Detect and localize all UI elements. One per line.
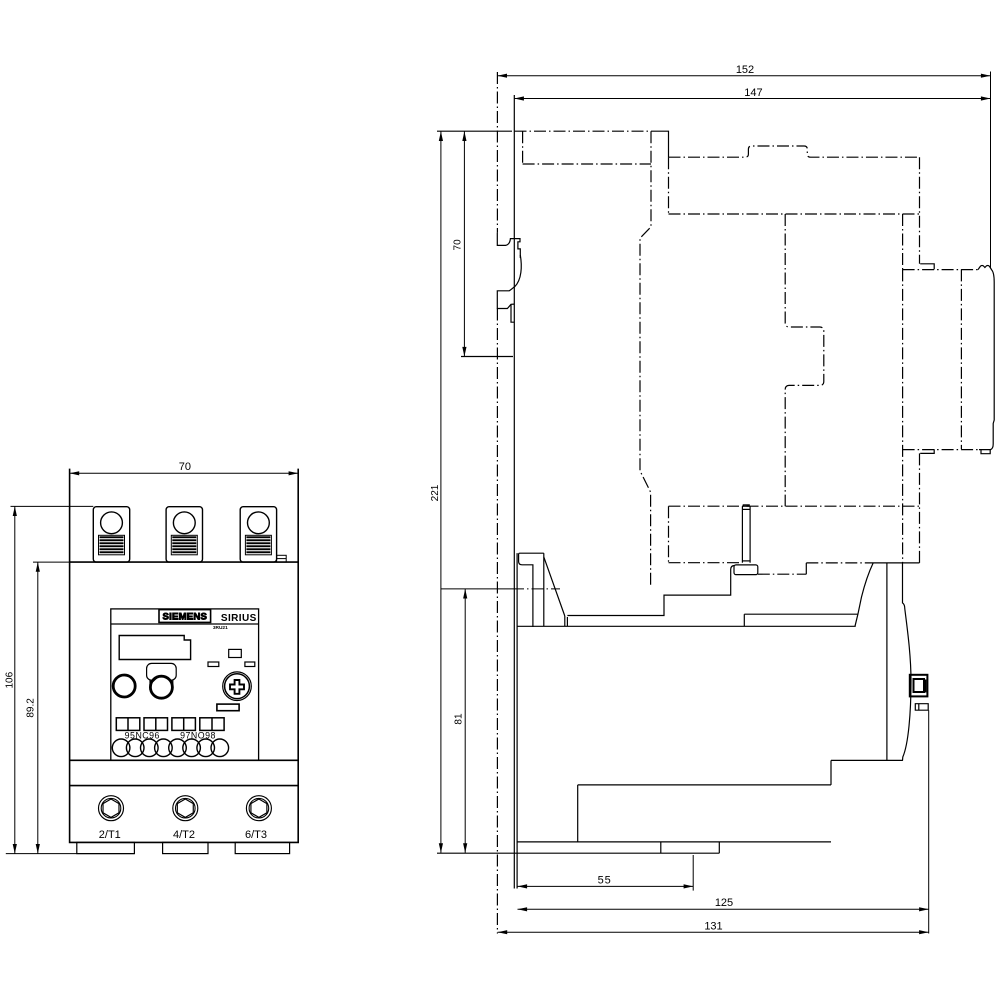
svg-text:125: 125	[715, 897, 733, 909]
svg-text:147: 147	[744, 87, 762, 99]
svg-text:152: 152	[736, 64, 754, 76]
svg-text:6/T3: 6/T3	[245, 829, 267, 841]
svg-text:106: 106	[4, 671, 15, 688]
svg-text:221: 221	[430, 484, 441, 501]
svg-text:70: 70	[179, 461, 191, 473]
svg-text:SIEMENS: SIEMENS	[163, 612, 208, 623]
svg-text:97NO98: 97NO98	[180, 731, 216, 741]
svg-text:89.2: 89.2	[25, 698, 36, 718]
svg-text:131: 131	[704, 920, 722, 932]
svg-text:95NC96: 95NC96	[125, 731, 160, 741]
svg-text:SIRIUS: SIRIUS	[221, 613, 257, 624]
svg-text:2/T1: 2/T1	[99, 829, 121, 841]
svg-text:4/T2: 4/T2	[173, 829, 195, 841]
svg-text:70: 70	[452, 239, 463, 251]
svg-text:55: 55	[598, 875, 612, 887]
svg-text:3RU21: 3RU21	[213, 625, 228, 631]
svg-text:81: 81	[453, 713, 464, 725]
